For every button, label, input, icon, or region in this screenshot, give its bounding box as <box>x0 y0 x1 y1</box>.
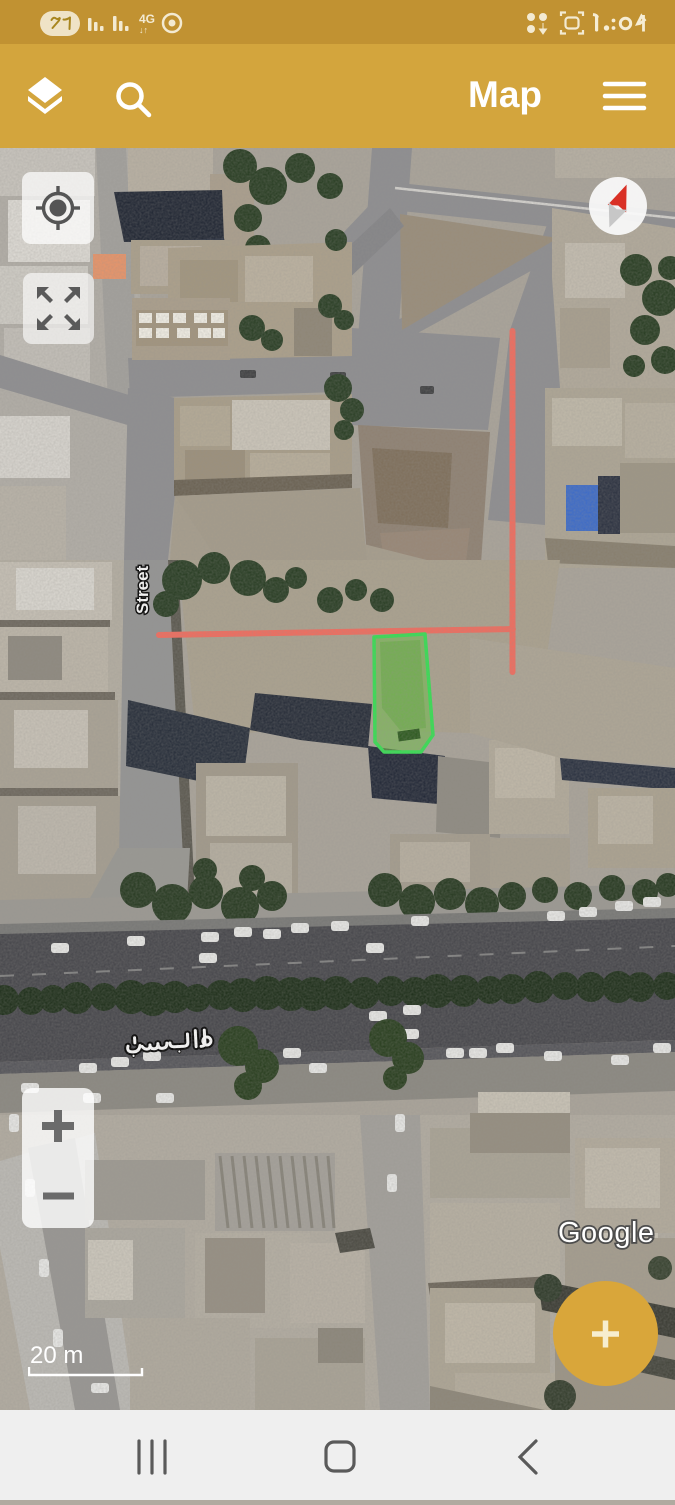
svg-text:4G: 4G <box>139 12 155 26</box>
svg-text:↓↑: ↓↑ <box>139 25 148 35</box>
svg-text:Google: Google <box>558 1217 655 1249</box>
